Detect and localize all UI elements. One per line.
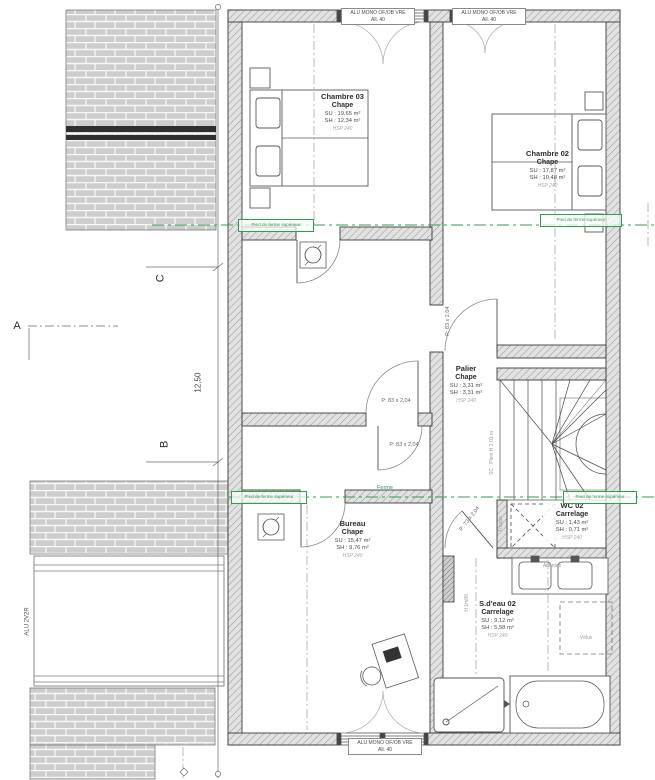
door-label: P: 83 x 2,04 bbox=[376, 442, 432, 448]
room-label-palier: Palier Chape SU : 3,31 m² SH : 3,31 m² H… bbox=[436, 365, 496, 405]
room-hsp: HSP 240 bbox=[436, 399, 496, 405]
axis-b: B bbox=[159, 435, 172, 453]
room-su: SU : 17,87 m² bbox=[500, 168, 595, 175]
floor-plan: ALU MONO OF/OB VRE All. 40 ALU MONO OF/O… bbox=[0, 0, 655, 780]
room-hsp: HSP 240 bbox=[310, 554, 395, 560]
window-label-bottom: ALU MONO OF/OB VRE All. 40 bbox=[348, 738, 422, 755]
room-label-chambre02: Chambre 02 Chape SU : 17,87 m² SH : 10,4… bbox=[500, 150, 595, 190]
height-line-label: H 1m80 bbox=[465, 575, 471, 631]
window-bottom bbox=[337, 691, 428, 745]
window-sill-height: All. 40 bbox=[351, 747, 419, 754]
truss-label: Pied de ferme supérieur bbox=[238, 219, 314, 232]
truss-label: Pied de ferme supérieur bbox=[231, 491, 307, 504]
room-finish: Chape bbox=[295, 102, 390, 110]
room-su: SU : 3,31 m² bbox=[436, 383, 496, 390]
room-sh: SH : 12,34 m² bbox=[295, 118, 390, 125]
bathtub bbox=[504, 676, 610, 733]
room-name: Chambre 03 bbox=[295, 93, 390, 102]
room-sh: SH : 3,31 m² bbox=[436, 390, 496, 397]
window-type: ALU MONO OF/OB VRE bbox=[455, 10, 523, 17]
window-label-left: ALU 2V2R bbox=[25, 593, 32, 649]
fan-icon bbox=[300, 242, 326, 268]
room-label-wc02: WC 02 Carrelage SU : 1,43 m² SH : 0,71 m… bbox=[543, 502, 601, 542]
room-su: SU : 15,47 m² bbox=[310, 538, 395, 545]
room-finish: Chape bbox=[500, 159, 595, 167]
window-sill-height: All. 40 bbox=[455, 17, 523, 24]
door-label: P: 83 x 2,04 bbox=[445, 293, 451, 349]
truss-label-ferme: Ferme bbox=[368, 485, 402, 491]
window-label-top-left: ALU MONO OF/OB VRE All. 40 bbox=[341, 8, 415, 25]
desk-and-chair bbox=[352, 634, 419, 695]
velux-label: Vélux bbox=[566, 636, 606, 642]
bed-chambre03 bbox=[250, 68, 368, 208]
room-label-chambre03: Chambre 03 Chape SU : 19,65 m² SH : 12,3… bbox=[295, 93, 390, 133]
room-su: SU : 1,43 m² bbox=[543, 520, 601, 527]
window-type: ALU MONO OF/OB VRE bbox=[351, 740, 419, 747]
axis-c: C bbox=[155, 269, 168, 287]
room-hsp: HSP 240 bbox=[455, 634, 540, 640]
room-name: Palier bbox=[436, 365, 496, 374]
room-sh: SH : 9,76 m² bbox=[310, 545, 395, 552]
room-hsp: HSP 240 bbox=[543, 536, 601, 542]
room-label-bureau: Bureau Chape SU : 15,47 m² SH : 9,76 m² … bbox=[310, 520, 395, 560]
chimney-block bbox=[66, 10, 216, 230]
truss-label: Pied de ferme supérieur bbox=[540, 214, 622, 227]
guardrail-label: SC : Plein H 1,01 m bbox=[490, 422, 496, 484]
room-su: SU : 19,65 m² bbox=[295, 111, 390, 118]
window-label-top-right: ALU MONO OF/OB VRE All. 40 bbox=[452, 8, 526, 25]
dimension-1250: 12,50 bbox=[193, 357, 202, 409]
trappe-label: Trappe bbox=[499, 504, 505, 544]
window-type: ALU MONO OF/OB VRE bbox=[344, 10, 412, 17]
fan-icon bbox=[258, 514, 284, 540]
truss-label: Pied de ferme supérieur bbox=[563, 491, 637, 504]
double-washbasin bbox=[512, 556, 608, 594]
axis-a: A bbox=[8, 320, 26, 333]
room-finish: Carrelage bbox=[543, 511, 601, 519]
room-name: Chambre 02 bbox=[500, 150, 595, 159]
room-sh: SH : 10,48 m² bbox=[500, 175, 595, 182]
room-name: Bureau bbox=[310, 520, 395, 529]
room-sh: SH : 0,71 m² bbox=[543, 527, 601, 534]
door-label: P: 83 x 2,04 bbox=[368, 398, 424, 404]
truss-lines bbox=[152, 225, 655, 497]
room-finish: Chape bbox=[310, 529, 395, 537]
annexe-lower bbox=[30, 481, 228, 779]
velux-roof-window bbox=[560, 602, 612, 654]
radiator bbox=[443, 556, 454, 602]
shower-tray bbox=[434, 678, 504, 732]
attentes-label: Attentes bbox=[528, 564, 576, 570]
staircase bbox=[500, 380, 606, 500]
window-sill-height: All. 40 bbox=[344, 17, 412, 24]
room-finish: Chape bbox=[436, 374, 496, 382]
room-hsp: HSP 240 bbox=[500, 184, 595, 190]
room-hsp: HSP 240 bbox=[295, 127, 390, 133]
